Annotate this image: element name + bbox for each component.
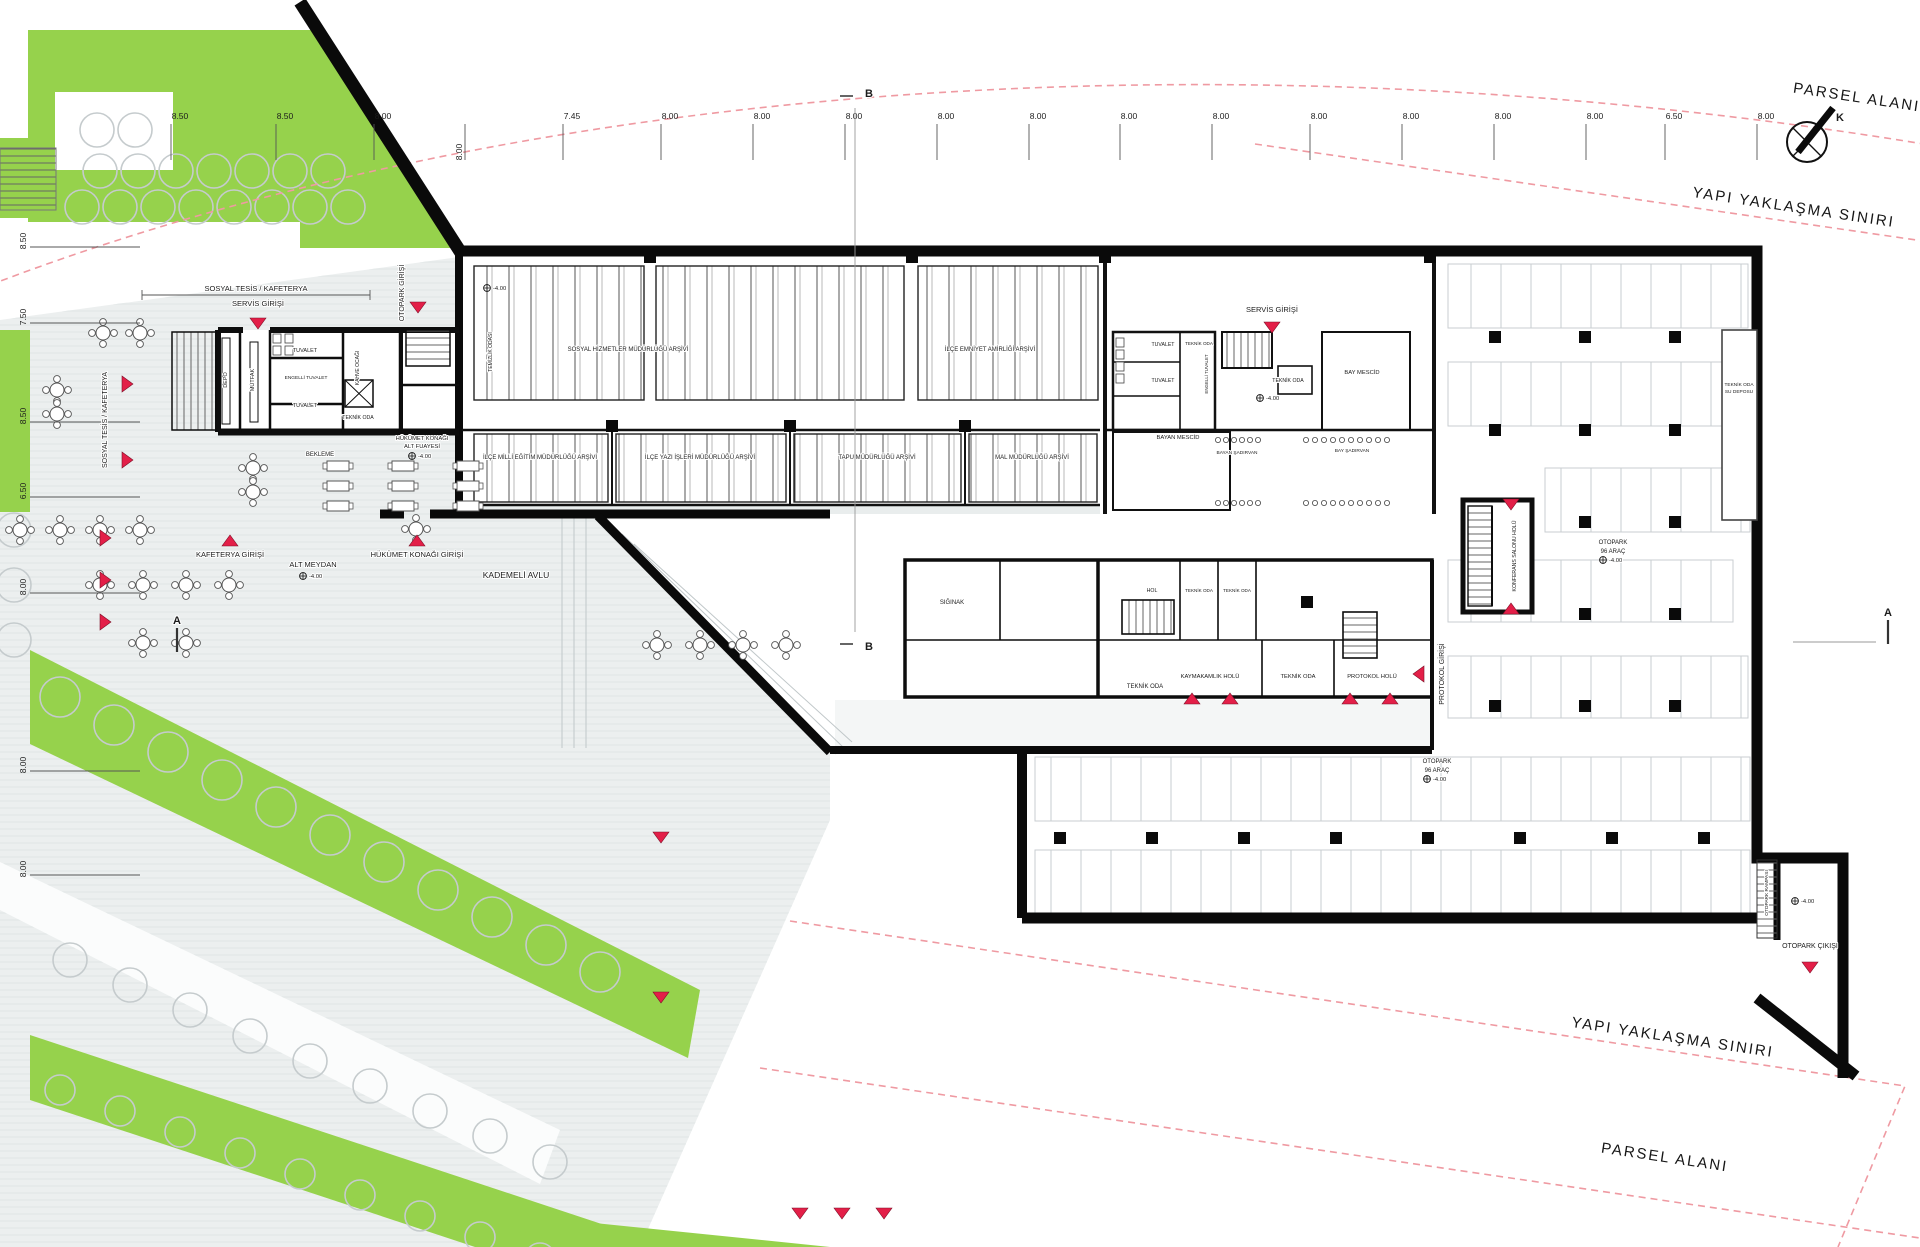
tap-icon: [1303, 437, 1308, 442]
wc-fixture: [1116, 362, 1124, 371]
chair: [794, 642, 801, 649]
chair: [54, 376, 61, 383]
label-rooms-siginak: SIĞINAK: [940, 599, 964, 606]
label-rooms-depo: DEPO: [223, 371, 229, 387]
chair: [697, 653, 704, 660]
table-top: [457, 501, 479, 511]
label-rooms-hol: HOL: [1147, 588, 1158, 594]
label-rooms-su1: TEKNİK ODA: [1724, 381, 1754, 388]
table-top: [779, 638, 793, 652]
chair: [148, 527, 155, 534]
dimension-label: 8.00: [1121, 111, 1138, 121]
label-sections-b: B: [865, 641, 873, 653]
tap-icon: [1357, 437, 1362, 442]
chair: [250, 454, 257, 461]
column-marker: [1099, 251, 1111, 263]
chair: [261, 489, 268, 496]
chair: [140, 593, 147, 600]
chair: [43, 411, 50, 418]
chair: [349, 463, 353, 469]
table-top: [136, 636, 150, 650]
chair: [194, 640, 201, 647]
label-areas-bekleme: BEKLEME: [306, 452, 334, 458]
tap-icon: [1239, 500, 1244, 505]
chair: [226, 571, 233, 578]
elevation-marker: -4.00: [484, 285, 507, 292]
north-arrow-icon: [1787, 108, 1833, 162]
label-areas-sosyal_tesis: SOSYAL TESİS / KAFETERYA: [205, 284, 308, 293]
dimension-label: 8.00: [1587, 111, 1604, 121]
table-top: [136, 578, 150, 592]
chair: [183, 651, 190, 658]
elevation-marker: -4.00: [1257, 395, 1280, 402]
chair: [86, 582, 93, 589]
wc-fixture: [285, 334, 293, 343]
chair: [129, 582, 136, 589]
label-rooms-arsiv6: MAL MÜDÜRLÜĞÜ ARŞİVİ: [995, 454, 1069, 461]
label-rooms-tuvalet: TUVALET: [1152, 378, 1176, 384]
chair: [137, 341, 144, 348]
chair: [643, 642, 650, 649]
label-rooms-teknik: TEKNİK ODA: [1127, 683, 1163, 690]
wc-fixture: [273, 334, 281, 343]
chair: [654, 631, 661, 638]
label-areas-fuaye1: HÜKÜMET KONAĞI: [396, 435, 449, 442]
chair: [414, 503, 418, 509]
tap-icon: [1375, 500, 1380, 505]
chair: [665, 642, 672, 649]
label-rooms-teknik: TEKNİK ODA: [1185, 587, 1214, 593]
elevation-marker: -4.00: [409, 453, 432, 460]
site-plan-canvas: -4.00-4.00-4.00-4.00-4.00-4.00-4.008.508…: [0, 0, 1920, 1247]
elevation-value: -4.00: [1609, 558, 1622, 564]
table-top: [53, 523, 67, 537]
table-top: [457, 461, 479, 471]
chair: [349, 483, 353, 489]
chair: [100, 341, 107, 348]
label-entrances-otopark_cikis: OTOPARK ÇIKIŞI: [1782, 943, 1838, 950]
column-marker: [1489, 700, 1501, 712]
label-rooms-arsiv3: İLÇE MİLLİ EĞİTİM MÜDÜRLÜĞÜ ARŞİVİ: [483, 454, 597, 461]
chair: [57, 516, 64, 523]
elevation-value: -4.00: [493, 286, 506, 292]
chair: [194, 582, 201, 589]
chair: [57, 538, 64, 545]
tap-icon: [1255, 500, 1260, 505]
archive-rooms: [474, 266, 1098, 502]
tap-icon: [1215, 437, 1220, 442]
wc-fixture: [1116, 350, 1124, 359]
dimension-label: 8.50: [18, 232, 28, 249]
chair: [111, 330, 118, 337]
table-top: [457, 481, 479, 491]
chair: [323, 503, 327, 509]
tap-icon: [1357, 500, 1362, 505]
tap-icon: [1312, 500, 1317, 505]
table-top: [133, 326, 147, 340]
column-marker: [906, 251, 918, 263]
column-marker: [606, 420, 618, 432]
chair: [100, 319, 107, 326]
column-marker: [1330, 832, 1342, 844]
label-rooms-kaymakamlik: KAYMAKAMLIK HOLÜ: [1181, 673, 1240, 680]
label-areas-fuaye2: ALT FUAYESİ: [404, 443, 440, 450]
dimension-label: 8.50: [18, 407, 28, 424]
chair: [323, 463, 327, 469]
label-rooms-bay_sadirvan: BAY ŞADIRVAN: [1335, 448, 1370, 454]
label-rooms-engelli: ENGELLİ TUVALET: [285, 374, 328, 381]
chair: [388, 463, 392, 469]
chair: [97, 516, 104, 523]
elevation-value: -4.00: [1433, 777, 1446, 783]
tap-icon: [1247, 500, 1252, 505]
tap-icon: [1384, 500, 1389, 505]
yapi-line-bottom: [790, 921, 1905, 1247]
dimension-label: 8.50: [172, 111, 189, 121]
dimension-label: 6.50: [18, 482, 28, 499]
column-marker: [1669, 608, 1681, 620]
column-marker: [1669, 331, 1681, 343]
dimension-label: 8.00: [375, 111, 392, 121]
dimension-label: 8.00: [18, 578, 28, 595]
chair: [654, 653, 661, 660]
label-rooms-arsiv2: İLÇE EMNİYET AMİRLİĞİ ARŞİVİ: [945, 346, 1036, 353]
label-rooms-arsiv4: İLÇE YAZI İŞLERİ MÜDÜRLÜĞÜ ARŞİVİ: [645, 454, 755, 461]
chair: [54, 422, 61, 429]
column-marker: [644, 251, 656, 263]
chair: [237, 582, 244, 589]
tap-icon: [1247, 437, 1252, 442]
table-top: [327, 461, 349, 471]
chair: [46, 527, 53, 534]
entrance-arrow-icon: [876, 1208, 892, 1219]
table-icon: [388, 501, 418, 511]
label-rooms-su2: SU DEPOSU: [1725, 389, 1754, 395]
dimension-label: 8.00: [18, 756, 28, 773]
chair: [54, 400, 61, 407]
wc-fixture: [285, 346, 293, 355]
entrance-arrow-icon: [834, 1208, 850, 1219]
column-marker: [1579, 516, 1591, 528]
column-marker: [1146, 832, 1158, 844]
elevation-value: -4.00: [1266, 396, 1279, 402]
dimension-label: 8.00: [1030, 111, 1047, 121]
label-areas-konferans: KONFERANS SALONU HOLÜ: [1511, 520, 1518, 591]
chair: [183, 571, 190, 578]
chair: [137, 319, 144, 326]
chair: [126, 527, 133, 534]
label-areas-otopark1: OTOPARK: [1423, 759, 1452, 765]
label-entrances-kafeterya: KAFETERYA GİRİŞİ: [196, 550, 264, 559]
column-marker: [1489, 424, 1501, 436]
entrance-arrow-icon: [1802, 962, 1818, 973]
label-entrances-hukumet: HÜKÜMET KONAĞI GİRİŞİ: [371, 550, 464, 559]
chair: [183, 593, 190, 600]
chair: [772, 642, 779, 649]
chair: [261, 465, 268, 472]
wc-fixture: [1116, 374, 1124, 383]
chair: [729, 642, 736, 649]
column-marker: [959, 420, 971, 432]
chair: [414, 463, 418, 469]
chair: [108, 582, 115, 589]
label-entrances-otopark: OTOPARK GİRİŞİ: [397, 265, 406, 322]
label-rooms-engelli: ENGELLİ TUVALET: [1204, 354, 1209, 393]
table-top: [50, 407, 64, 421]
label-areas-rampa: OTOPARK RAMPASI: [1764, 870, 1770, 916]
chair: [140, 629, 147, 636]
table-icon: [388, 481, 418, 491]
chair: [349, 503, 353, 509]
site-stairs-topleft: [0, 148, 56, 210]
parsel-line-bottom: [760, 1068, 1920, 1238]
table-icon: [453, 501, 483, 511]
dimension-label: 8.00: [1213, 111, 1230, 121]
label-rooms-teknik: TEKNİK ODA: [1223, 587, 1252, 593]
label-rooms-tuvalet: TUVALET: [293, 348, 318, 354]
label-rooms-teknik: TEKNİK ODA: [1280, 673, 1315, 680]
tap-icon: [1375, 437, 1380, 442]
chair: [453, 503, 457, 509]
column-marker: [1054, 832, 1066, 844]
chair: [68, 527, 75, 534]
chair: [6, 527, 13, 534]
tap-icon: [1231, 500, 1236, 505]
table-top: [96, 326, 110, 340]
column-marker: [1489, 331, 1501, 343]
chair: [17, 516, 24, 523]
label-entrances-servis_right: SERVİS GİRİŞİ: [1246, 305, 1298, 314]
wc-fixture: [1116, 338, 1124, 347]
elevation-marker: -4.00: [300, 573, 323, 580]
chair: [215, 582, 222, 589]
column-marker: [1579, 331, 1591, 343]
label-areas-otopark1: OTOPARK: [1599, 540, 1628, 546]
label-rooms-kahve: KAHVE OCAĞI: [354, 351, 361, 385]
chair: [414, 483, 418, 489]
elevation-value: -4.00: [418, 454, 431, 460]
table-top: [179, 578, 193, 592]
label-entrances-servis_left: SERVİS GİRİŞİ: [232, 299, 284, 308]
water-tank-room: [1722, 330, 1757, 520]
table-top: [179, 636, 193, 650]
column-marker: [1424, 251, 1436, 263]
label-boundaries-parsel_bottom: PARSEL ALANI: [1600, 1140, 1729, 1176]
chair: [453, 463, 457, 469]
label-rooms-protokol_holu: PROTOKOL HOLÜ: [1347, 673, 1397, 680]
column-marker: [1698, 832, 1710, 844]
chair: [140, 651, 147, 658]
table-icon: [453, 461, 483, 471]
tap-icon: [1321, 437, 1326, 442]
elevation-marker: -4.00: [1600, 557, 1623, 564]
column-marker: [784, 420, 796, 432]
elevation-marker: -4.00: [1424, 776, 1447, 783]
dimension-label: 7.50: [18, 308, 28, 325]
label-areas-alt_meydan: ALT MEYDAN: [289, 560, 336, 569]
label-rooms-teknik: TEKNİK ODA: [1185, 340, 1214, 346]
chair: [697, 631, 704, 638]
label-areas-otopark2: 96 ARAÇ: [1425, 768, 1450, 774]
label-rooms-tuvalet: TUVALET: [293, 403, 318, 409]
chair: [172, 582, 179, 589]
chair: [250, 478, 257, 485]
chair: [65, 387, 72, 394]
tap-icon: [1215, 500, 1220, 505]
label-sections-b: B: [865, 88, 873, 100]
chair: [402, 526, 409, 533]
chair: [108, 527, 115, 534]
tap-icon: [1330, 437, 1335, 442]
chair: [388, 483, 392, 489]
chair: [129, 640, 136, 647]
tap-icon: [1223, 500, 1228, 505]
label-areas-kademeli_avlu: KADEMELİ AVLU: [483, 570, 549, 580]
label-sections-a: A: [173, 615, 181, 627]
label-rooms-arsiv5: TAPU MÜDÜRLÜĞÜ ARŞİVİ: [838, 454, 916, 461]
dimension-label: 8.00: [1495, 111, 1512, 121]
table-icon: [323, 501, 353, 511]
label-sections-a: A: [1884, 607, 1892, 619]
chair: [479, 483, 483, 489]
chair: [388, 503, 392, 509]
dimension-label: 6.50: [1666, 111, 1683, 121]
entrance-arrow-icon: [792, 1208, 808, 1219]
table-top: [246, 485, 260, 499]
table-top: [392, 501, 414, 511]
chair: [424, 526, 431, 533]
dimension-label: 8.00: [1311, 111, 1328, 121]
chair: [151, 582, 158, 589]
wc-fixture: [273, 346, 281, 355]
chair: [250, 500, 257, 507]
chair: [137, 516, 144, 523]
table-top: [392, 461, 414, 471]
tap-icon: [1366, 437, 1371, 442]
table-icon: [323, 461, 353, 471]
column-marker: [1238, 832, 1250, 844]
table-icon: [772, 631, 801, 660]
chair: [65, 411, 72, 418]
tap-icon: [1384, 437, 1389, 442]
chair: [740, 653, 747, 660]
column-marker: [1579, 700, 1591, 712]
chair: [751, 642, 758, 649]
column-marker: [1422, 832, 1434, 844]
chair: [453, 483, 457, 489]
dimension-label: 8.00: [18, 860, 28, 877]
elevation-value: -4.00: [1801, 899, 1814, 905]
chair: [126, 330, 133, 337]
label-rooms-temizlik: TEMİZLİK ODASI: [487, 332, 494, 371]
column-marker: [1579, 424, 1591, 436]
chair: [413, 515, 420, 522]
chair: [17, 538, 24, 545]
conference-stair-block: [1463, 500, 1532, 612]
dimension-label: 7.45: [564, 111, 581, 121]
table-top: [327, 501, 349, 511]
elevation-marker: -4.00: [1792, 898, 1815, 905]
dimension-label: 8.00: [454, 143, 464, 160]
fuaye-strip: [835, 700, 1432, 748]
tap-icon: [1330, 500, 1335, 505]
label-areas-otopark2: 96 ARAÇ: [1601, 549, 1626, 555]
column-marker: [1514, 832, 1526, 844]
dimension-label: 8.00: [662, 111, 679, 121]
tap-icon: [1339, 437, 1344, 442]
tap-icon: [1348, 437, 1353, 442]
chair: [708, 642, 715, 649]
label-rooms-bay_mescid: BAY MESCİD: [1344, 369, 1379, 376]
table-icon: [388, 461, 418, 471]
table-top: [409, 522, 423, 536]
dimension-label: 8.50: [277, 111, 294, 121]
tap-icon: [1366, 500, 1371, 505]
elevation-value: -4.00: [309, 574, 322, 580]
chair: [140, 571, 147, 578]
label-rooms-bayan_sadirvan: BAYAN ŞADIRVAN: [1217, 450, 1258, 456]
label-north_label: K: [1836, 112, 1844, 124]
label-boundaries-yapi_bottom: YAPI YAKLAŞMA SINIRI: [1570, 1014, 1775, 1061]
chair: [151, 640, 158, 647]
dimension-label: 8.00: [754, 111, 771, 121]
label-entrances-protokol: PROTOKOL GİRİŞİ: [1437, 643, 1446, 705]
chair: [137, 538, 144, 545]
column-marker: [1669, 700, 1681, 712]
table-top: [13, 523, 27, 537]
table-top: [50, 383, 64, 397]
chair: [97, 593, 104, 600]
chair: [740, 631, 747, 638]
label-rooms-teknik: TEKNİK ODA: [1272, 377, 1304, 384]
table-top: [650, 638, 664, 652]
label-boundaries-parsel_top: PARSEL ALANI: [1792, 80, 1920, 116]
label-areas-sosyal_tesis_side: SOSYAL TESİS / KAFETERYA: [100, 372, 109, 468]
table-top: [327, 481, 349, 491]
label-rooms-tuvalet: TUVALET: [1152, 342, 1176, 348]
tap-icon: [1255, 437, 1260, 442]
label-rooms-mutfak: MUTFAK: [250, 369, 256, 392]
tap-icon: [1231, 437, 1236, 442]
chair: [226, 593, 233, 600]
chair: [479, 463, 483, 469]
column-marker: [1579, 608, 1591, 620]
chair: [479, 503, 483, 509]
dimension-label: 8.00: [846, 111, 863, 121]
chair: [148, 330, 155, 337]
chair: [43, 387, 50, 394]
label-boundaries-yapi_top: YAPI YAKLAŞMA SINIRI: [1691, 184, 1896, 231]
tap-icon: [1312, 437, 1317, 442]
chair: [89, 330, 96, 337]
table-icon: [323, 481, 353, 491]
table-top: [222, 578, 236, 592]
dimension-label: 8.00: [1403, 111, 1420, 121]
table-top: [392, 481, 414, 491]
tap-icon: [1303, 500, 1308, 505]
table-top: [736, 638, 750, 652]
table-top: [693, 638, 707, 652]
dimension-label: 8.00: [1758, 111, 1775, 121]
table-top: [246, 461, 260, 475]
floor-plan-drawing: -4.00-4.00-4.00-4.00-4.00-4.00-4.008.508…: [0, 0, 1920, 1247]
chair: [183, 629, 190, 636]
column-marker: [1606, 832, 1618, 844]
chair: [239, 489, 246, 496]
chair: [783, 631, 790, 638]
chair: [783, 653, 790, 660]
tap-icon: [1321, 500, 1326, 505]
